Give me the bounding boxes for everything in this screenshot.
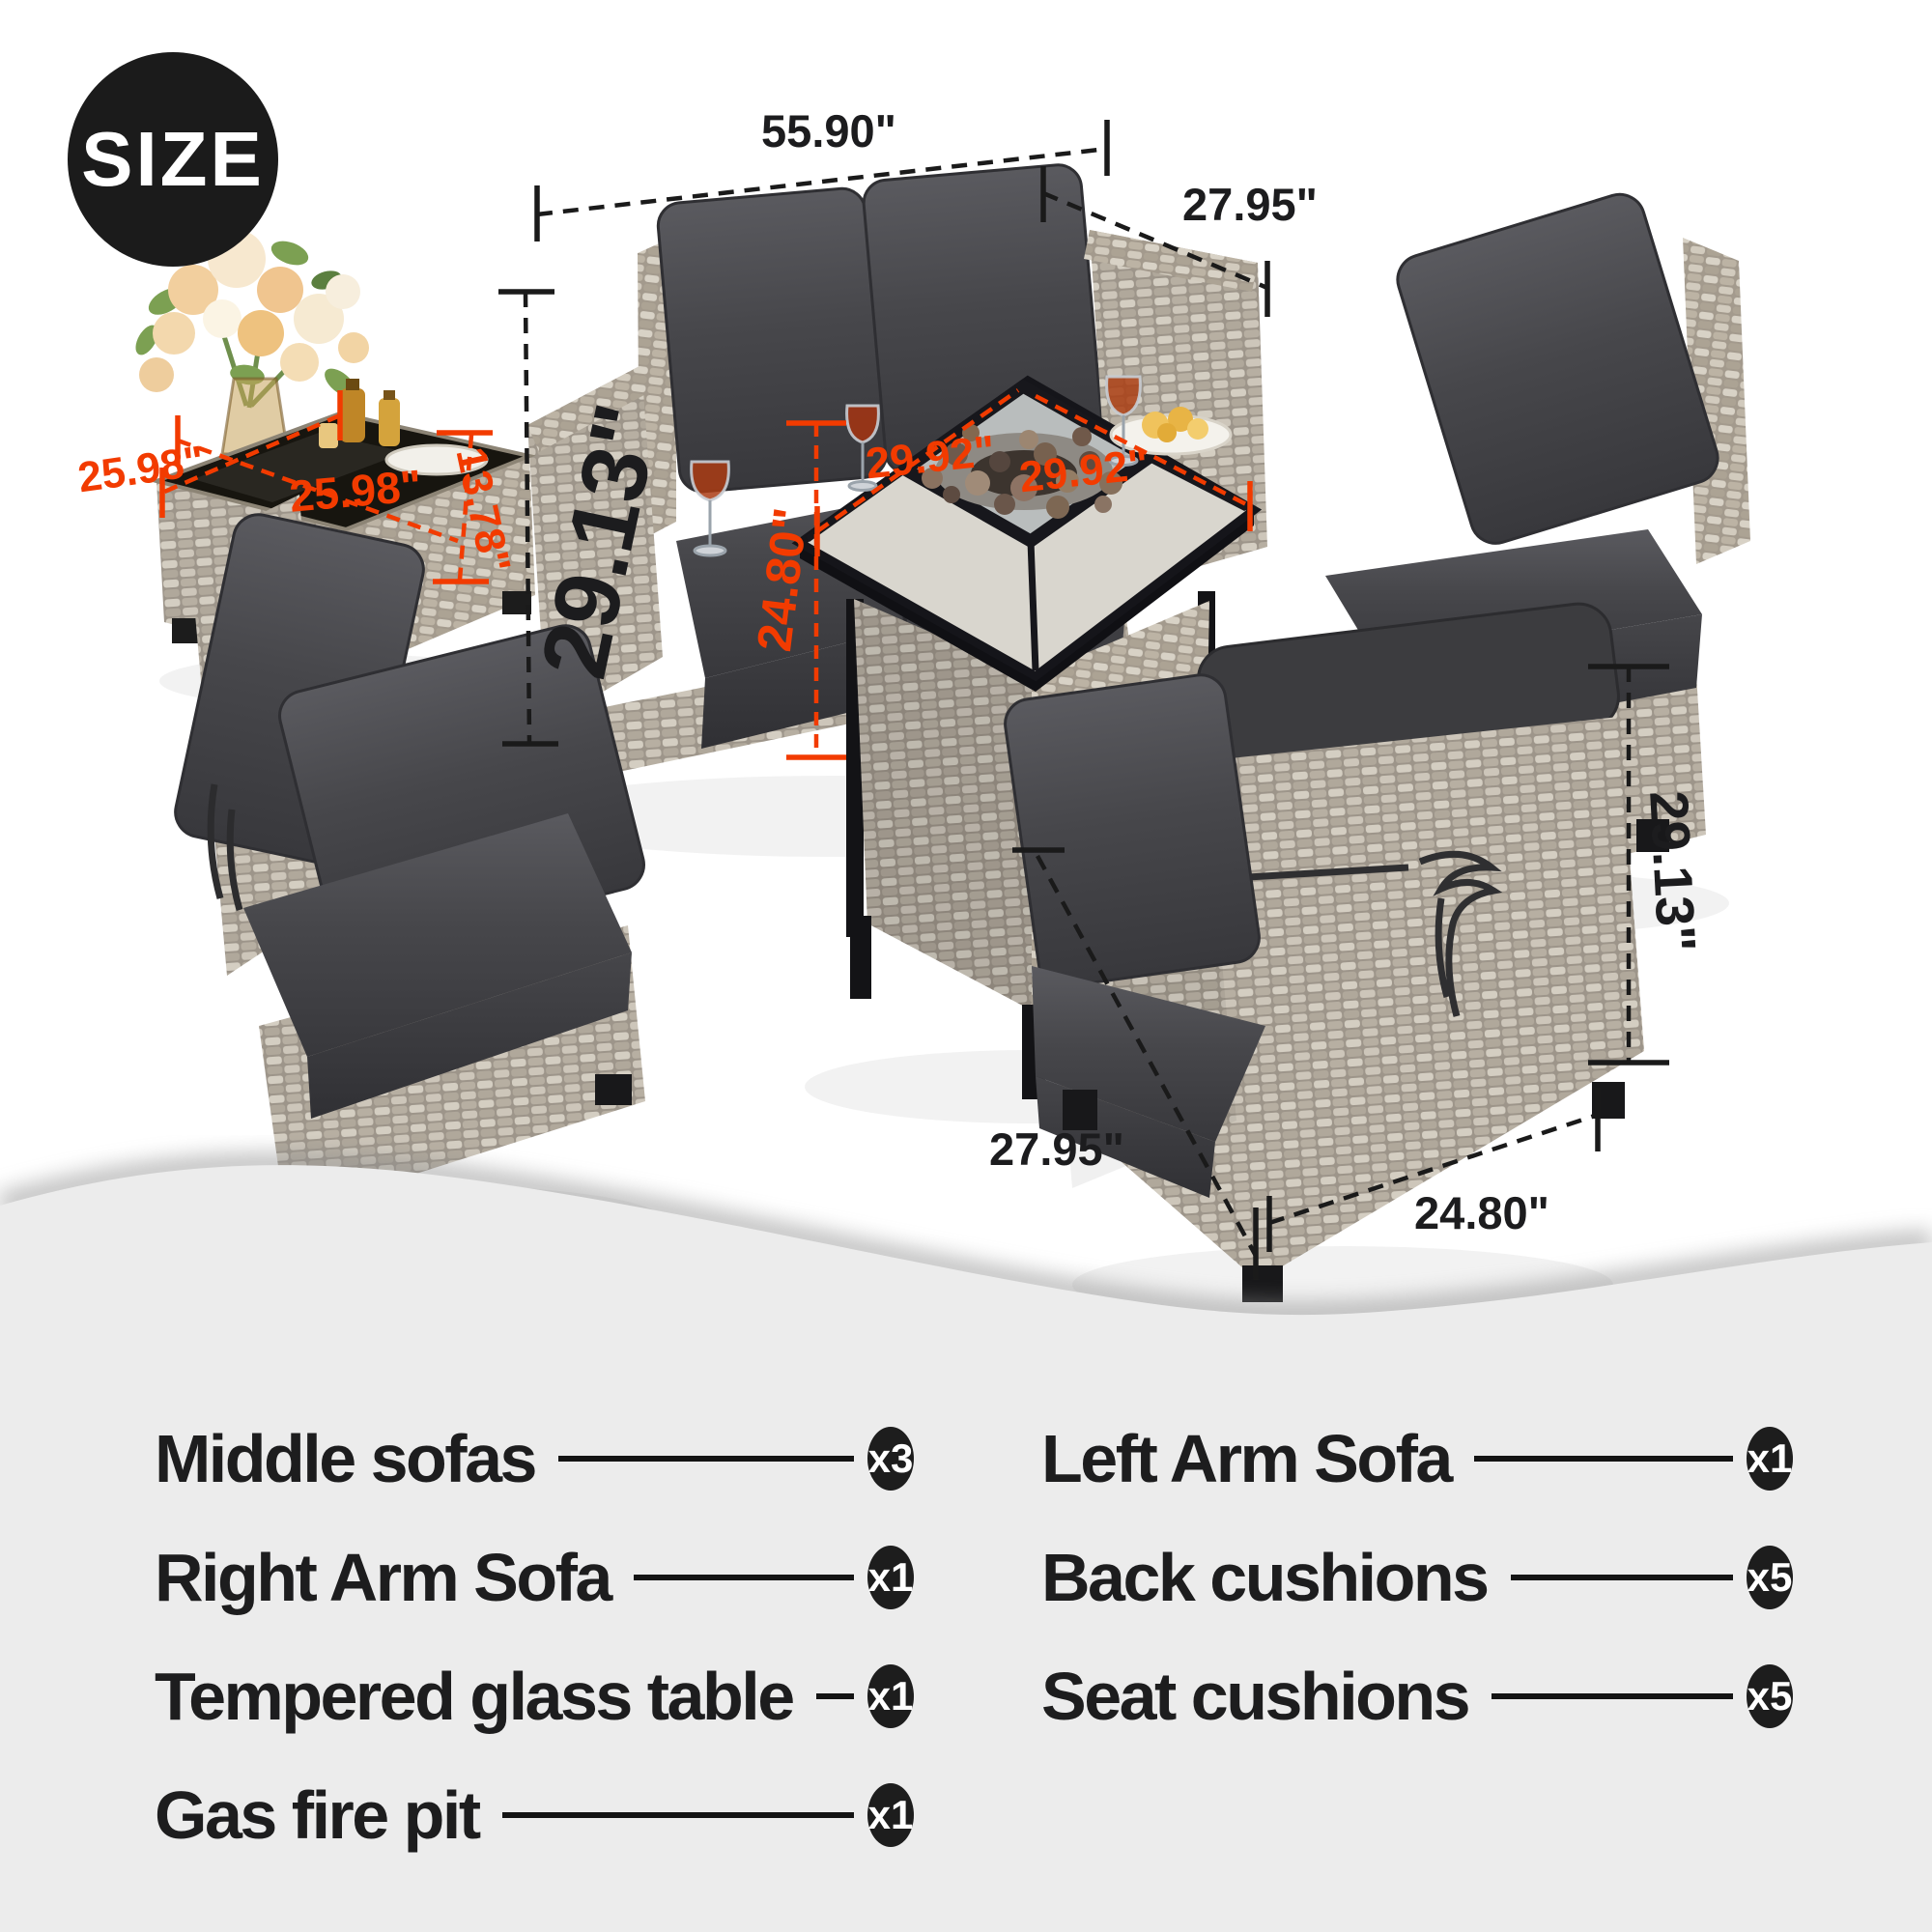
dim-chair-depth: 24.80" (1414, 1187, 1549, 1238)
item-count-badge: x1 (867, 1546, 914, 1609)
item-count-badge: x1 (1747, 1427, 1793, 1491)
list-item: Gas fire pit x1 (155, 1771, 914, 1860)
item-lead-line (1511, 1575, 1733, 1580)
item-lead-line (558, 1456, 854, 1462)
parts-list-right-column: Left Arm Sofa x1 Back cushions x5 Seat c… (1041, 1414, 1793, 1771)
dim-sofa-width: 55.90" (761, 105, 896, 156)
item-count-badge: x1 (867, 1664, 914, 1728)
list-item: Left Arm Sofa x1 (1041, 1414, 1793, 1503)
item-label: Left Arm Sofa (1041, 1420, 1451, 1497)
item-count-badge: x5 (1747, 1546, 1793, 1609)
list-item: Back cushions x5 (1041, 1533, 1793, 1622)
item-lead-line (816, 1693, 854, 1699)
dim-sofa-depth: 27.95" (1182, 179, 1318, 230)
item-count-badge: x3 (867, 1427, 914, 1491)
size-infographic: 55.90" 27.95" 29.13" 29.13" 27.95" 24.80… (0, 0, 1932, 1932)
size-badge-label: SIZE (81, 115, 265, 204)
dim-chair-height: 29.13" (1638, 789, 1708, 953)
item-lead-line (1492, 1693, 1733, 1699)
item-lead-line (634, 1575, 854, 1580)
item-lead-line (502, 1812, 854, 1818)
item-label: Gas fire pit (155, 1776, 479, 1854)
item-label: Back cushions (1041, 1539, 1488, 1616)
item-label: Right Arm Sofa (155, 1539, 611, 1616)
list-item: Seat cushions x5 (1041, 1652, 1793, 1741)
dim-chair-width: 27.95" (989, 1123, 1124, 1175)
item-count-badge: x5 (1747, 1664, 1793, 1728)
item-count-badge: x1 (867, 1783, 914, 1847)
parts-list-left-column: Middle sofas x3 Right Arm Sofa x1 Temper… (155, 1414, 914, 1889)
item-label: Middle sofas (155, 1420, 535, 1497)
size-badge: SIZE (68, 52, 278, 267)
item-label: Seat cushions (1041, 1658, 1468, 1735)
item-label: Tempered glass table (155, 1658, 793, 1735)
list-item: Tempered glass table x1 (155, 1652, 914, 1741)
item-lead-line (1474, 1456, 1733, 1462)
list-item: Middle sofas x3 (155, 1414, 914, 1503)
list-item: Right Arm Sofa x1 (155, 1533, 914, 1622)
